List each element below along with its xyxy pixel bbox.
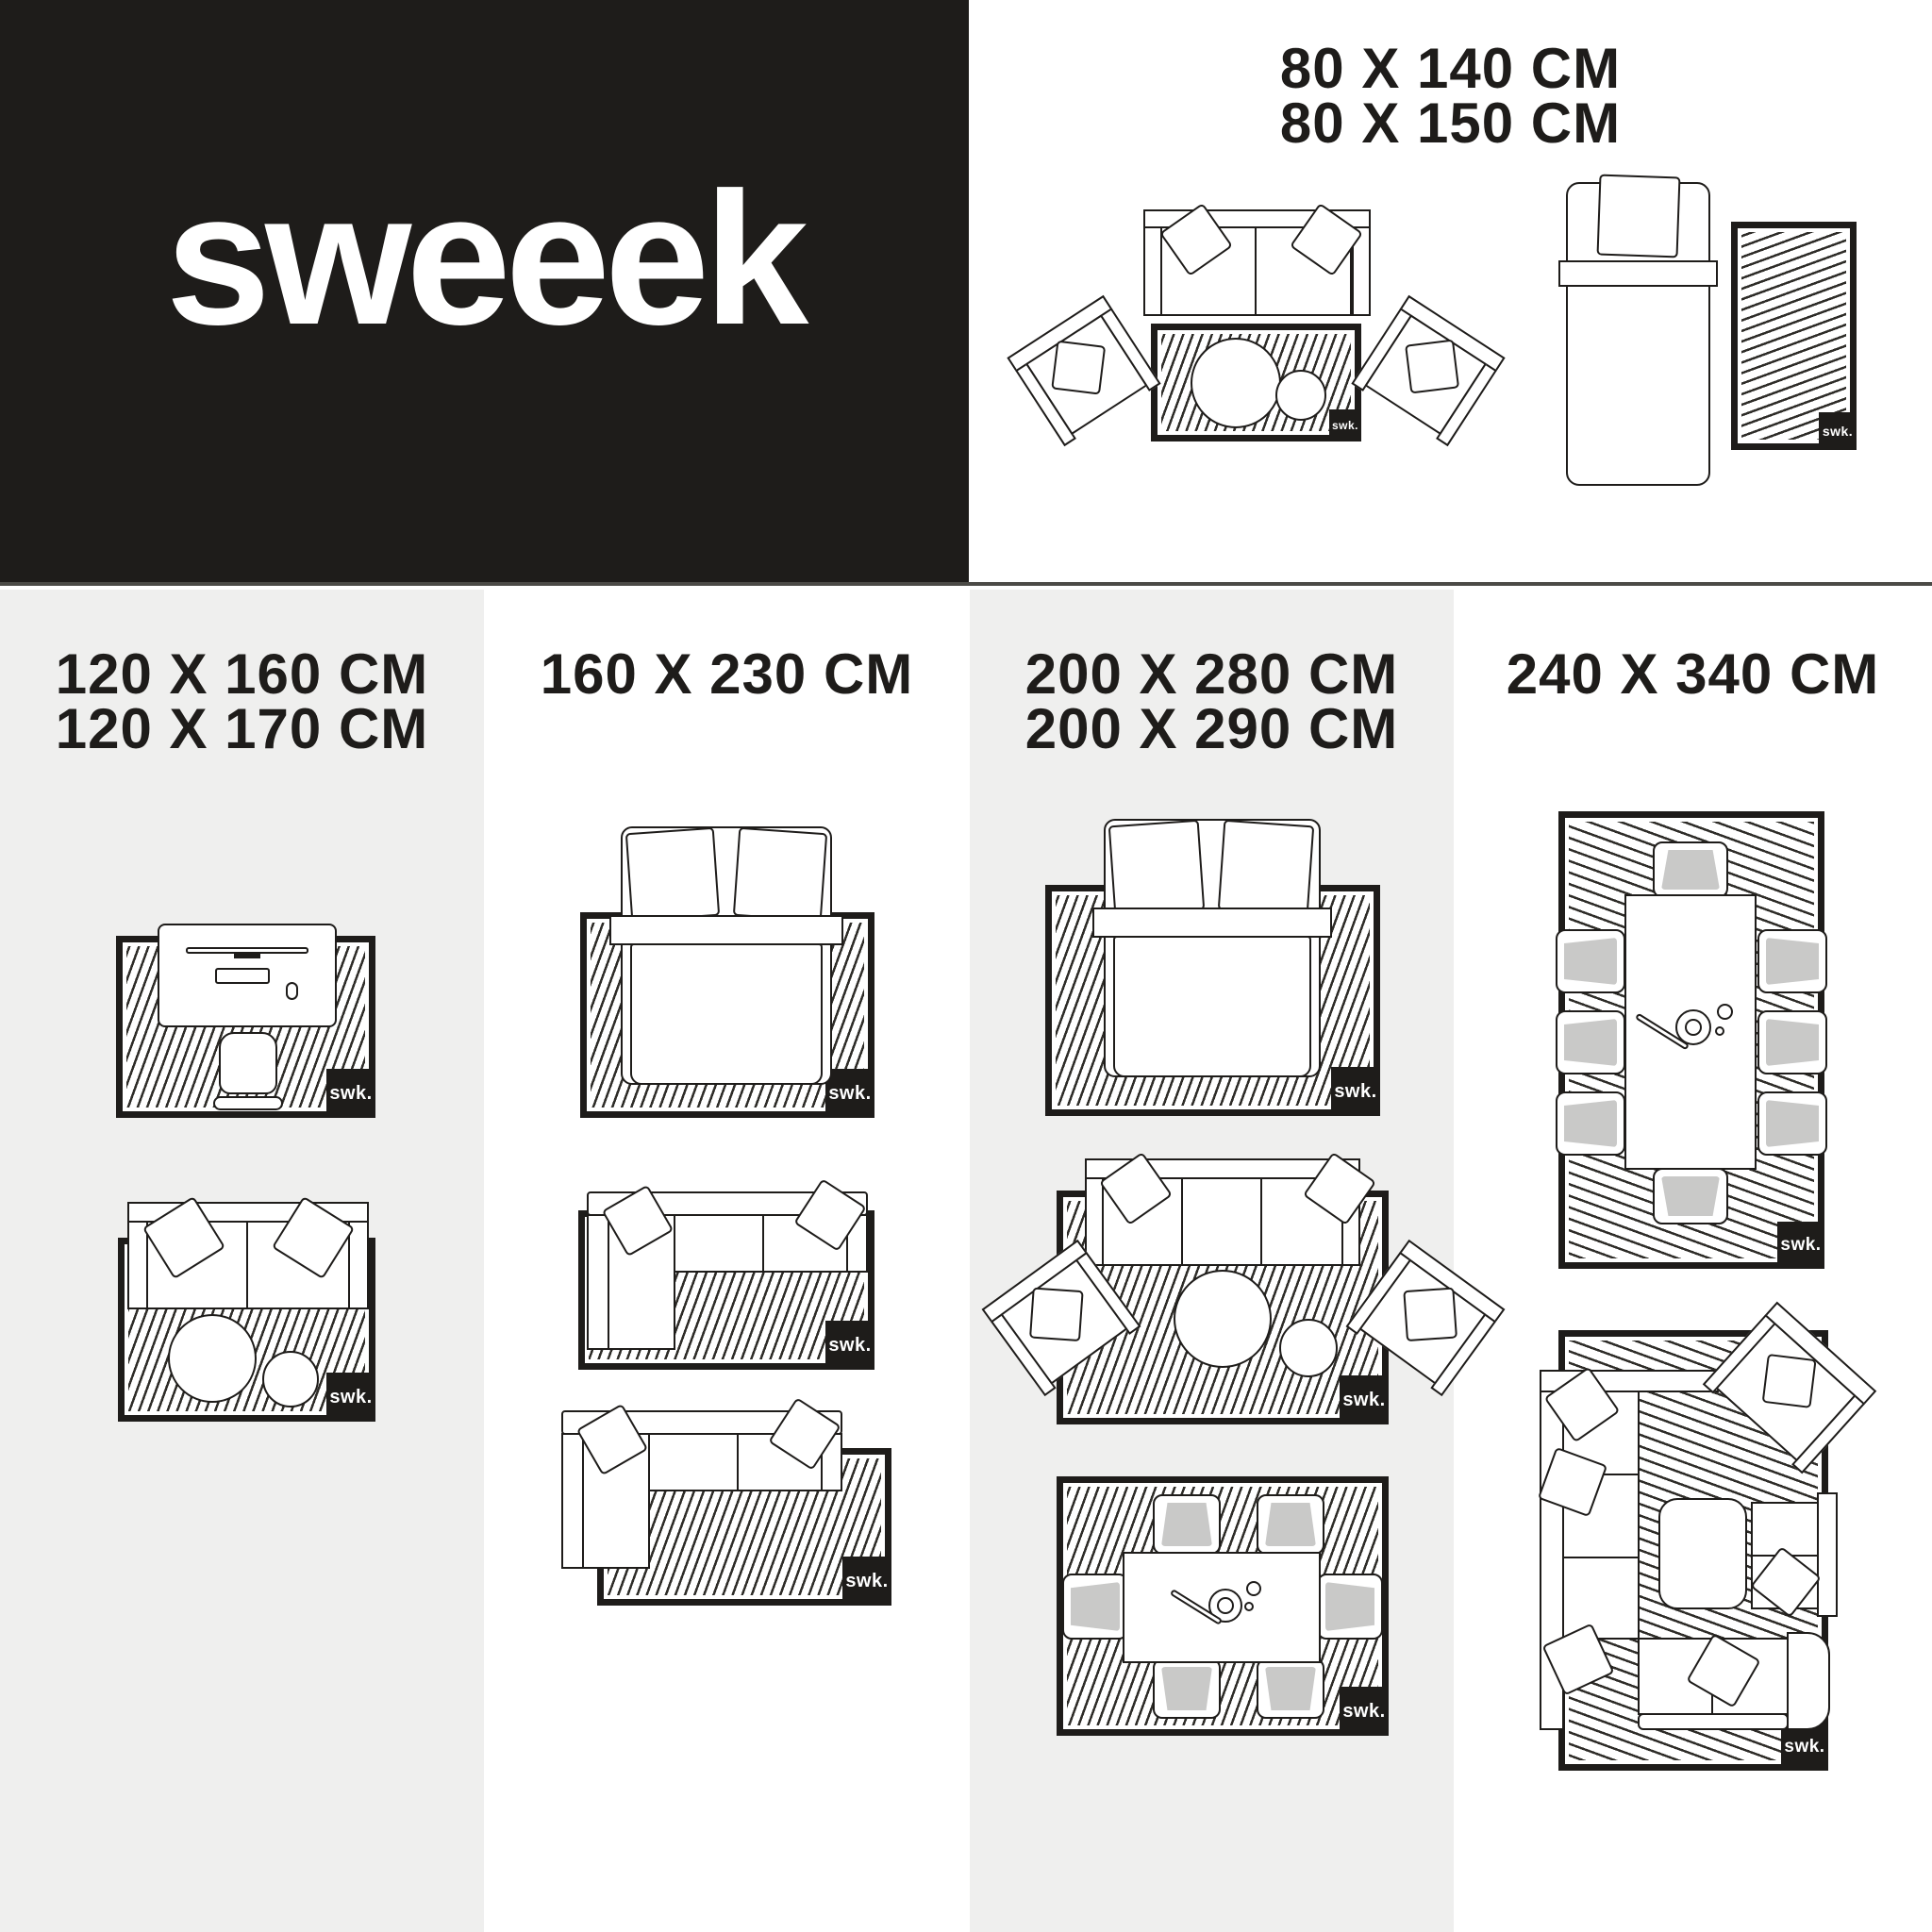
swk-mark: swk. <box>825 1069 874 1118</box>
chair-seat <box>1766 1019 1819 1066</box>
dining-chair-icon <box>1757 1010 1827 1074</box>
throw-pillow-icon <box>1403 1288 1457 1342</box>
dining-chair-icon <box>1556 1010 1625 1074</box>
corner-sofa-chaise-end <box>1787 1632 1830 1730</box>
armchair-icon <box>1351 295 1505 446</box>
size-heading-120: 120 X 160 CM 120 X 170 CM <box>0 647 484 757</box>
size-line: 240 X 340 CM <box>1454 647 1932 702</box>
coffee-table-large-icon <box>1174 1270 1272 1368</box>
armchair-arm <box>1817 1492 1838 1617</box>
coffee-table-large-icon <box>168 1314 257 1403</box>
bed-pillow-icon <box>1218 820 1314 916</box>
throw-pillow-icon <box>1051 341 1106 395</box>
chair-seat <box>1161 1503 1212 1546</box>
swk-mark: swk. <box>1819 412 1857 450</box>
chair-seat <box>1661 850 1720 890</box>
bed-duvet-band <box>609 915 843 945</box>
chair-seat <box>1265 1667 1316 1710</box>
size-heading-200: 200 X 280 CM 200 X 290 CM <box>970 647 1454 757</box>
chair-seat <box>1564 938 1617 985</box>
size-line: 120 X 170 CM <box>0 702 484 757</box>
corner-sofa-cushion <box>674 1214 764 1273</box>
swk-mark: swk. <box>842 1557 891 1606</box>
rug-size-guide-infographic: sweeek 80 X 140 CM 80 X 150 CM swk. <box>0 0 1932 1932</box>
swk-mark: swk. <box>1331 1067 1380 1116</box>
brand-banner: sweeek <box>0 0 969 582</box>
size-line: 80 X 140 CM <box>969 42 1932 96</box>
glass-icon <box>1244 1602 1254 1611</box>
mouse-icon <box>286 982 298 1000</box>
swk-mark: swk. <box>1340 1687 1389 1736</box>
sofa-cushion <box>1181 1177 1262 1266</box>
corner-sofa-front-edge <box>1638 1713 1789 1730</box>
chair-seat <box>1161 1667 1212 1710</box>
bed-pillow-icon <box>1597 175 1681 258</box>
monitor-stand <box>234 953 260 958</box>
dining-chair-icon <box>1257 1658 1324 1719</box>
throw-pillow-icon <box>1029 1288 1084 1342</box>
swk-mark: swk. <box>326 1069 375 1118</box>
dining-chair-icon <box>1317 1574 1383 1640</box>
dining-chair-icon <box>1556 929 1625 993</box>
size-heading-80: 80 X 140 CM 80 X 150 CM <box>969 42 1932 151</box>
size-line: 160 X 230 CM <box>484 647 970 702</box>
dining-chair-icon <box>1257 1494 1324 1555</box>
sofa-arm-left <box>127 1221 148 1309</box>
keyboard-icon <box>215 968 270 984</box>
section-divider <box>0 582 1932 586</box>
bed-duvet <box>630 943 823 1085</box>
desk-chair-seat <box>219 1032 277 1094</box>
swk-mark: swk. <box>326 1373 375 1422</box>
dining-chair-icon <box>1653 1168 1728 1224</box>
bed-duvet-band <box>1558 260 1718 287</box>
glass-icon <box>1717 1004 1733 1020</box>
throw-pillow-icon <box>1762 1354 1817 1408</box>
plate-inner <box>1685 1019 1702 1036</box>
plate-inner <box>1217 1597 1234 1614</box>
chair-seat <box>1766 938 1819 985</box>
desk-chair-base <box>213 1096 283 1110</box>
swk-mark: swk. <box>1781 1724 1828 1771</box>
bed-pillow-icon <box>733 827 827 922</box>
sofa-arm-left <box>1143 226 1162 316</box>
throw-pillow-icon <box>1405 340 1459 394</box>
bed-duvet <box>1113 936 1311 1077</box>
coffee-table-small-icon <box>1279 1319 1338 1377</box>
sofa-arm-right <box>348 1221 369 1309</box>
swk-mark: swk. <box>1340 1375 1389 1424</box>
chair-seat <box>1766 1100 1819 1147</box>
bed-duvet-band <box>1092 908 1332 938</box>
chair-seat <box>1661 1176 1720 1216</box>
dining-chair-icon <box>1757 1091 1827 1156</box>
coffee-table-small-icon <box>262 1351 319 1407</box>
coffee-table-icon <box>1658 1498 1747 1609</box>
coffee-table-large-icon <box>1191 338 1281 428</box>
size-heading-160: 160 X 230 CM <box>484 647 970 702</box>
chair-seat <box>1564 1019 1617 1066</box>
chair-seat <box>1071 1582 1120 1631</box>
chair-seat <box>1564 1100 1617 1147</box>
bedside-rug-icon: swk. <box>1731 222 1857 450</box>
corner-sofa-arm-left <box>561 1433 584 1569</box>
corner-sofa-cushion <box>648 1433 739 1491</box>
dining-chair-icon <box>1153 1658 1221 1719</box>
brand-logo: sweeek <box>166 151 804 368</box>
size-heading-240: 240 X 340 CM <box>1454 647 1932 702</box>
glass-icon <box>1246 1581 1261 1596</box>
dining-chair-icon <box>1653 841 1728 898</box>
chair-seat <box>1265 1503 1316 1546</box>
corner-sofa-arm-left <box>587 1214 609 1350</box>
glass-icon <box>1715 1026 1724 1036</box>
size-line: 120 X 160 CM <box>0 647 484 702</box>
corner-sofa-cushion <box>1562 1557 1640 1640</box>
bed-pillow-icon <box>1108 820 1205 916</box>
swk-mark: swk. <box>1329 409 1361 441</box>
dining-chair-icon <box>1153 1494 1221 1555</box>
swk-mark: swk. <box>1777 1222 1824 1269</box>
chair-seat <box>1325 1582 1374 1631</box>
dining-chair-icon <box>1757 929 1827 993</box>
size-line: 200 X 280 CM <box>970 647 1454 702</box>
coffee-table-small-icon <box>1275 370 1326 421</box>
size-line: 80 X 150 CM <box>969 96 1932 151</box>
dining-chair-icon <box>1062 1574 1128 1640</box>
size-line: 200 X 290 CM <box>970 702 1454 757</box>
bed-pillow-icon <box>625 827 720 922</box>
armchair-icon <box>1007 295 1160 446</box>
swk-mark: swk. <box>825 1321 874 1370</box>
dining-chair-icon <box>1556 1091 1625 1156</box>
